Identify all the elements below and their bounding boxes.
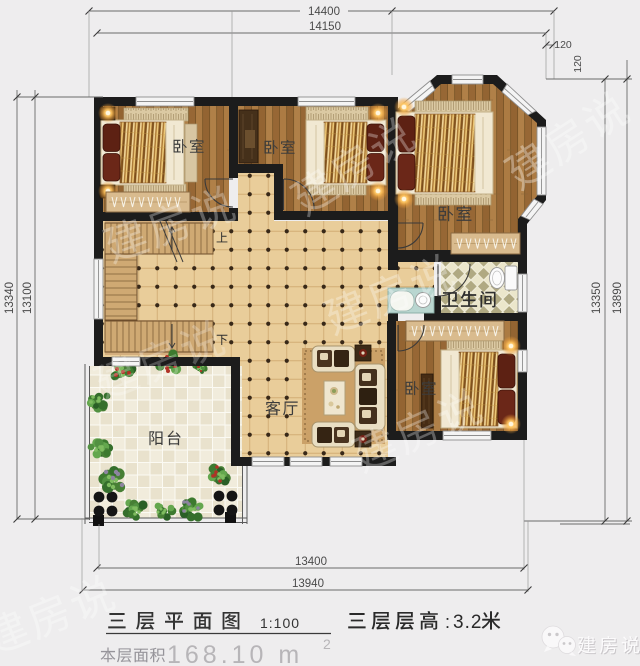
svg-text:14400: 14400 [308, 6, 340, 18]
svg-text:120: 120 [572, 55, 584, 73]
svg-text:13940: 13940 [292, 578, 324, 590]
svg-text:13340: 13340 [4, 282, 16, 314]
svg-text:120: 120 [554, 39, 572, 51]
svg-text:1:100: 1:100 [260, 615, 300, 631]
svg-text::: : [445, 612, 450, 632]
svg-text:13350: 13350 [591, 282, 603, 314]
svg-text:3.2: 3.2 [453, 612, 482, 633]
svg-text:168.10 m: 168.10 m [167, 641, 303, 666]
svg-text:13100: 13100 [22, 282, 34, 314]
svg-text:13890: 13890 [612, 282, 624, 314]
svg-text:13400: 13400 [295, 556, 327, 568]
svg-text:14150: 14150 [309, 21, 341, 33]
svg-text:2: 2 [323, 636, 331, 652]
